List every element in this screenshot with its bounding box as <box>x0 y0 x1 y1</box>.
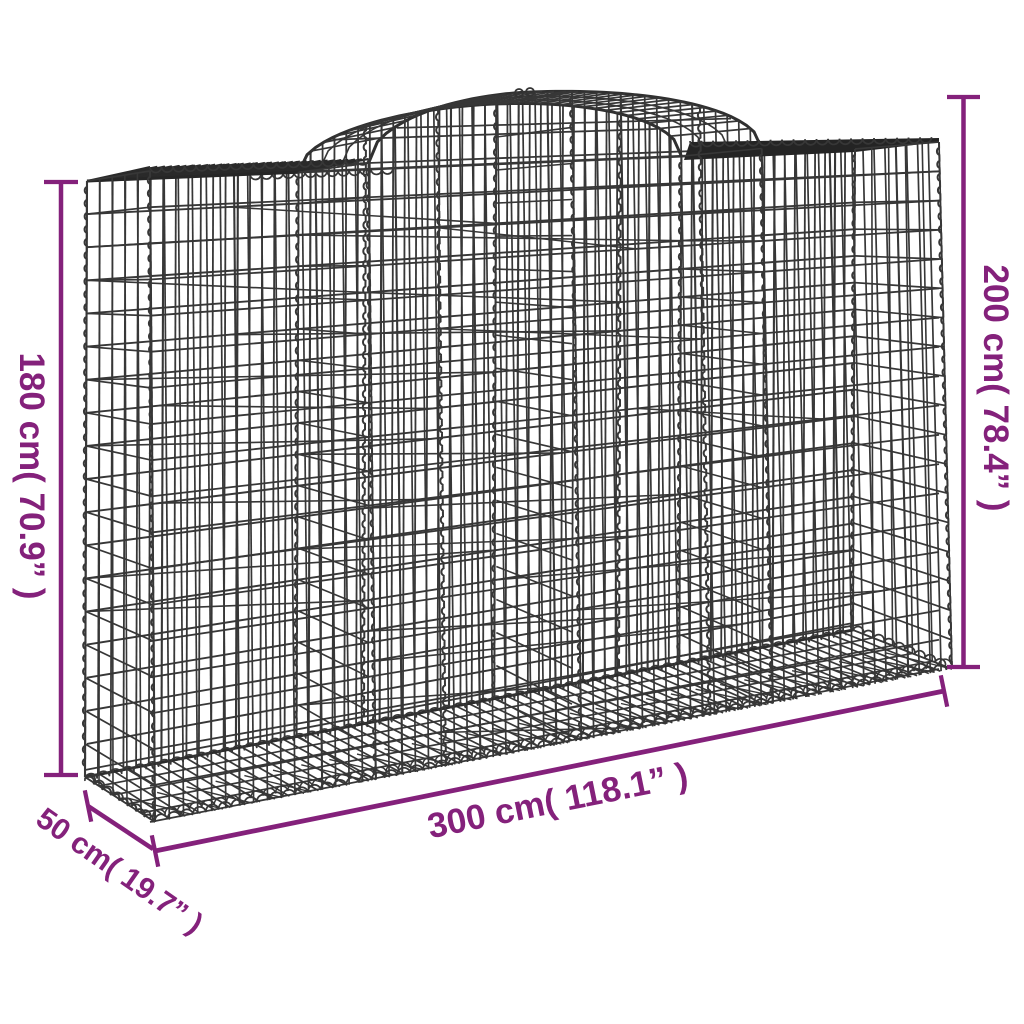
svg-text:200 cm( 78.4” ): 200 cm( 78.4” ) <box>976 264 1015 511</box>
svg-text:180 cm( 70.9” ): 180 cm( 70.9” ) <box>12 352 51 599</box>
